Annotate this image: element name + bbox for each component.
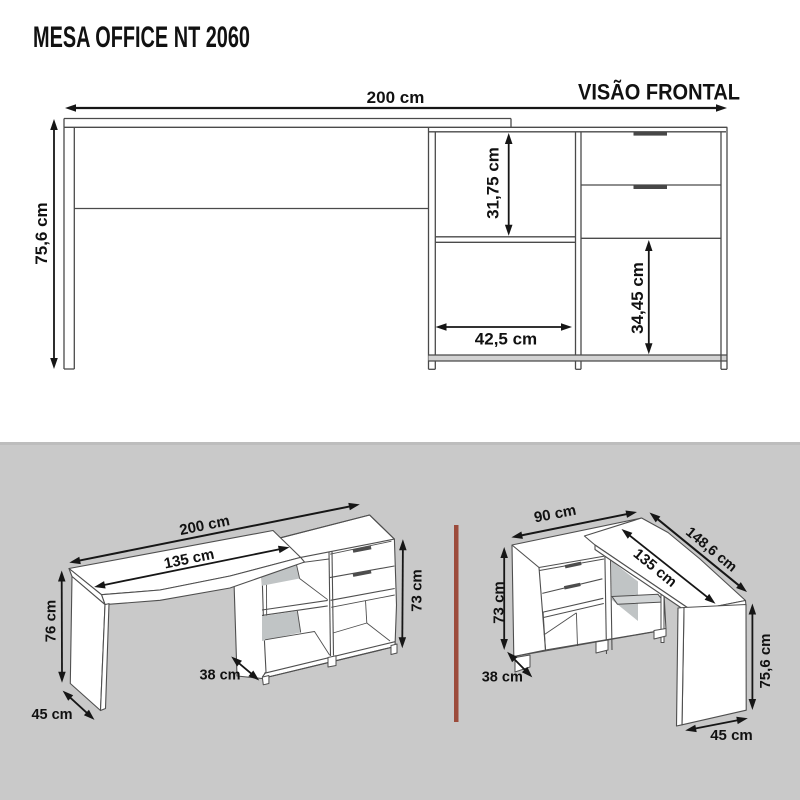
svg-text:76 cm: 76 cm	[43, 600, 60, 643]
svg-text:34,45 cm: 34,45 cm	[628, 262, 647, 334]
svg-text:45 cm: 45 cm	[710, 727, 753, 744]
svg-text:73 cm: 73 cm	[409, 569, 426, 612]
svg-text:45 cm: 45 cm	[31, 707, 72, 723]
svg-text:75,6 cm: 75,6 cm	[32, 202, 51, 264]
svg-text:38 cm: 38 cm	[199, 668, 240, 684]
svg-text:MESA OFFICE NT 2060: MESA OFFICE NT 2060	[33, 21, 250, 54]
svg-text:75,6 cm: 75,6 cm	[757, 633, 774, 688]
svg-text:200 cm: 200 cm	[367, 88, 425, 107]
svg-text:73 cm: 73 cm	[491, 581, 508, 624]
svg-text:42,5 cm: 42,5 cm	[475, 330, 537, 349]
svg-text:31,75 cm: 31,75 cm	[484, 147, 503, 219]
svg-text:38 cm: 38 cm	[482, 670, 523, 686]
svg-text:VISÃO FRONTAL: VISÃO FRONTAL	[578, 80, 740, 105]
